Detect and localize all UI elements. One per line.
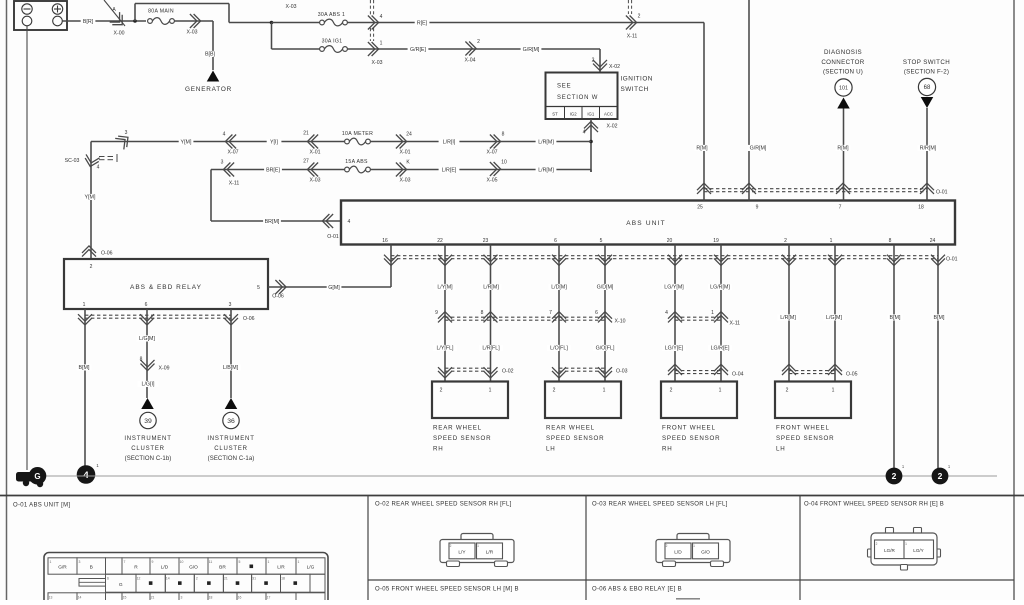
svg-text:R[M]: R[M] xyxy=(696,146,708,152)
svg-text:O-01: O-01 xyxy=(936,190,948,196)
svg-text:11: 11 xyxy=(209,560,213,564)
svg-text:FRONT WHEEL: FRONT WHEEL xyxy=(662,425,716,432)
svg-text:10A METER: 10A METER xyxy=(342,131,373,137)
svg-text:L/R[M]: L/R[M] xyxy=(483,285,499,291)
svg-text:ABS & EBD RELAY: ABS & EBD RELAY xyxy=(130,284,202,291)
svg-text:G/R: G/R xyxy=(58,565,67,571)
svg-text:Y[M]: Y[M] xyxy=(85,195,96,201)
svg-text:ACC: ACC xyxy=(604,112,613,117)
svg-text:DIAGNOSIS: DIAGNOSIS xyxy=(824,49,862,56)
svg-text:68: 68 xyxy=(924,85,931,91)
svg-text:2: 2 xyxy=(450,544,452,548)
svg-text:15A ABS: 15A ABS xyxy=(345,159,368,165)
svg-text:3: 3 xyxy=(221,160,224,166)
svg-text:X-04: X-04 xyxy=(465,58,476,64)
svg-text:2: 2 xyxy=(638,14,641,20)
svg-text:G/R[M]: G/R[M] xyxy=(523,47,540,53)
svg-text:39: 39 xyxy=(144,418,152,425)
svg-text:L/G[I]: L/G[I] xyxy=(142,382,155,388)
svg-text:X-01: X-01 xyxy=(400,150,411,156)
svg-text:2: 2 xyxy=(477,39,480,45)
svg-text:1: 1 xyxy=(477,544,479,548)
svg-text:B[B]: B[B] xyxy=(205,52,216,58)
svg-text:(SECTION U): (SECTION U) xyxy=(823,69,863,76)
svg-text:1: 1 xyxy=(711,310,714,316)
svg-text:L/B[M]: L/B[M] xyxy=(223,365,239,371)
svg-text:2: 2 xyxy=(592,58,595,64)
svg-text:10: 10 xyxy=(180,560,184,564)
svg-text:36: 36 xyxy=(227,418,235,425)
svg-text:14: 14 xyxy=(78,595,82,599)
svg-text:2: 2 xyxy=(938,471,943,481)
svg-text:31: 31 xyxy=(252,577,256,581)
svg-text:B: B xyxy=(90,565,93,571)
svg-text:B[M]: B[M] xyxy=(934,315,945,321)
svg-text:16: 16 xyxy=(238,595,242,599)
svg-text:101: 101 xyxy=(839,85,848,91)
svg-text:B[M]: B[M] xyxy=(890,315,901,321)
svg-text:(SECTION C-1a): (SECTION C-1a) xyxy=(208,456,255,462)
svg-text:6: 6 xyxy=(554,238,557,244)
svg-text:8: 8 xyxy=(481,310,484,316)
svg-text:L/Y[M]: L/Y[M] xyxy=(437,285,453,291)
svg-text:R[M]: R[M] xyxy=(837,146,849,152)
svg-text:20: 20 xyxy=(667,238,673,244)
svg-text:(SECTION F-2): (SECTION F-2) xyxy=(904,69,949,76)
svg-text:O-06: O-06 xyxy=(272,294,284,300)
svg-text:G/O: G/O xyxy=(701,550,710,556)
svg-text:3: 3 xyxy=(79,560,81,564)
svg-text:30A IG1: 30A IG1 xyxy=(322,39,343,45)
svg-text:SPEED SENSOR: SPEED SENSOR xyxy=(546,435,604,442)
svg-text:IGNITION: IGNITION xyxy=(621,76,653,83)
svg-text:6: 6 xyxy=(595,310,598,316)
svg-text:L/R[FL]: L/R[FL] xyxy=(482,346,500,352)
svg-text:3: 3 xyxy=(181,595,183,599)
svg-text:3: 3 xyxy=(125,130,128,136)
svg-text:O-04 FRONT WHEEL SPEED SENSOR: O-04 FRONT WHEEL SPEED SENSOR RH [E] B xyxy=(804,502,944,508)
svg-text:L/G[M]: L/G[M] xyxy=(139,336,155,342)
svg-text:1: 1 xyxy=(905,542,907,546)
svg-text:24: 24 xyxy=(406,132,412,138)
svg-text:LG/R[E]: LG/R[E] xyxy=(711,346,730,352)
svg-text:G/O: G/O xyxy=(189,565,198,571)
svg-text:17: 17 xyxy=(267,595,271,599)
svg-text:10: 10 xyxy=(501,160,507,166)
svg-text:8: 8 xyxy=(889,238,892,244)
svg-text:5: 5 xyxy=(257,285,260,291)
svg-text:21: 21 xyxy=(224,577,228,581)
svg-text:ST: ST xyxy=(552,112,558,117)
svg-text:1: 1 xyxy=(268,560,270,564)
svg-text:SPEED SENSOR: SPEED SENSOR xyxy=(662,435,720,442)
svg-text:L/R: L/R xyxy=(277,565,285,571)
svg-text:SECTION W: SECTION W xyxy=(557,95,598,101)
svg-text:2: 2 xyxy=(666,544,668,548)
svg-text:1: 1 xyxy=(719,388,722,394)
svg-text:2: 2 xyxy=(670,388,673,394)
svg-text:1: 1 xyxy=(50,560,52,564)
svg-text:9: 9 xyxy=(435,310,438,316)
svg-text:X-02: X-02 xyxy=(607,124,618,130)
svg-text:R: R xyxy=(134,565,138,571)
svg-text:X-10: X-10 xyxy=(615,319,626,325)
svg-text:18: 18 xyxy=(281,577,285,581)
svg-text:6: 6 xyxy=(145,302,148,308)
svg-text:L/D: L/D xyxy=(161,565,169,571)
svg-text:B[M]: B[M] xyxy=(79,365,90,371)
svg-text:X-02: X-02 xyxy=(609,64,620,70)
svg-text:O-05: O-05 xyxy=(846,372,858,378)
svg-text:9: 9 xyxy=(152,560,154,564)
svg-text:L/Y[FL]: L/Y[FL] xyxy=(436,346,454,352)
svg-text:16: 16 xyxy=(382,238,388,244)
svg-text:1: 1 xyxy=(380,41,383,47)
svg-text:X-09: X-09 xyxy=(159,366,170,372)
svg-text:2: 2 xyxy=(784,238,787,244)
svg-text:O-02: O-02 xyxy=(502,369,514,375)
svg-text:L/R: L/R xyxy=(486,550,494,556)
svg-text:4: 4 xyxy=(348,219,351,225)
svg-text:L/G: L/G xyxy=(307,565,315,571)
svg-text:LG/R[M]: LG/R[M] xyxy=(710,285,730,291)
svg-text:G: G xyxy=(119,582,123,588)
svg-text:X-03: X-03 xyxy=(187,30,198,36)
svg-text:SC-03: SC-03 xyxy=(65,158,80,164)
svg-text:CONNECTOR: CONNECTOR xyxy=(821,59,864,66)
svg-text:REAR WHEEL: REAR WHEEL xyxy=(546,425,595,432)
svg-text:4: 4 xyxy=(380,14,383,20)
svg-text:X-03: X-03 xyxy=(372,60,383,66)
svg-text:G/R[E]: G/R[E] xyxy=(410,47,426,53)
svg-text:1: 1 xyxy=(693,544,695,548)
svg-text:L/O[FL]: L/O[FL] xyxy=(550,346,568,352)
svg-text:LH: LH xyxy=(546,446,556,453)
svg-text:80A MAIN: 80A MAIN xyxy=(148,9,174,15)
svg-text:X-07: X-07 xyxy=(487,150,498,156)
svg-text:L/R[M]: L/R[M] xyxy=(780,315,796,321)
svg-text:7: 7 xyxy=(839,205,842,211)
svg-text:X-03: X-03 xyxy=(310,178,321,184)
svg-text:BR[E]: BR[E] xyxy=(266,168,280,174)
svg-text:ABS UNIT: ABS UNIT xyxy=(626,220,666,227)
svg-text:4: 4 xyxy=(583,130,586,136)
svg-text:L/G[M]: L/G[M] xyxy=(826,315,842,321)
svg-text:4: 4 xyxy=(97,165,100,171)
svg-text:G[M]: G[M] xyxy=(328,285,340,291)
svg-text:L/D: L/D xyxy=(674,550,682,556)
svg-text:SPEED SENSOR: SPEED SENSOR xyxy=(433,435,491,442)
svg-text:STOP SWITCH: STOP SWITCH xyxy=(903,59,950,66)
svg-text:12: 12 xyxy=(137,577,141,581)
svg-text:4: 4 xyxy=(665,310,668,316)
svg-text:X-00: X-00 xyxy=(114,31,125,37)
svg-text:X-11: X-11 xyxy=(627,34,638,40)
svg-text:O-06: O-06 xyxy=(101,251,113,257)
svg-text:Y[M]: Y[M] xyxy=(181,140,192,146)
svg-text:IG2: IG2 xyxy=(570,112,578,117)
svg-text:CLUSTER: CLUSTER xyxy=(131,446,165,452)
svg-text:2: 2 xyxy=(440,388,443,394)
svg-text:LG/Y: LG/Y xyxy=(913,548,923,553)
svg-text:G: G xyxy=(34,472,40,481)
svg-text:X-03: X-03 xyxy=(286,4,297,10)
svg-text:L/Y: L/Y xyxy=(458,550,466,556)
svg-text:1: 1 xyxy=(83,302,86,308)
svg-text:6: 6 xyxy=(107,577,109,581)
svg-text:22: 22 xyxy=(437,238,443,244)
svg-text:19: 19 xyxy=(713,238,719,244)
svg-text:15: 15 xyxy=(123,595,127,599)
svg-text:BR[M]: BR[M] xyxy=(265,219,280,225)
svg-text:5: 5 xyxy=(239,560,241,564)
svg-text:INSTRUMENT: INSTRUMENT xyxy=(207,436,254,442)
svg-text:LG/R: LG/R xyxy=(884,548,895,553)
svg-text:(SECTION C-1b): (SECTION C-1b) xyxy=(125,456,172,462)
svg-text:LG/Y[M]: LG/Y[M] xyxy=(664,285,684,291)
svg-text:O-06: O-06 xyxy=(243,316,255,322)
svg-text:G/D[M]: G/D[M] xyxy=(597,285,614,291)
svg-text:13: 13 xyxy=(49,595,53,599)
svg-text:18: 18 xyxy=(918,205,924,211)
svg-text:X-11: X-11 xyxy=(229,181,240,187)
svg-text:CLUSTER: CLUSTER xyxy=(214,446,248,452)
svg-text:L/R[E]: L/R[E] xyxy=(442,168,457,174)
svg-text:23: 23 xyxy=(483,238,489,244)
svg-text:21: 21 xyxy=(303,131,309,137)
svg-text:Y[I]: Y[I] xyxy=(270,140,278,146)
svg-text:1: 1 xyxy=(830,238,833,244)
svg-text:24: 24 xyxy=(930,238,936,244)
svg-text:L/R[I]: L/R[I] xyxy=(443,140,456,146)
svg-text:BR: BR xyxy=(219,565,226,571)
svg-text:X-01: X-01 xyxy=(310,150,321,156)
svg-text:O-03: O-03 xyxy=(616,369,628,375)
svg-text:1: 1 xyxy=(489,388,492,394)
svg-text:9: 9 xyxy=(756,205,759,211)
svg-text:27: 27 xyxy=(303,159,309,165)
svg-text:L/R[M]: L/R[M] xyxy=(538,140,554,146)
svg-text:14: 14 xyxy=(166,577,170,581)
svg-text:O-04: O-04 xyxy=(732,372,744,378)
svg-text:3: 3 xyxy=(229,302,232,308)
svg-text:O-01: O-01 xyxy=(946,257,958,263)
svg-text:SPEED SENSOR: SPEED SENSOR xyxy=(776,435,834,442)
svg-text:4: 4 xyxy=(83,470,89,481)
svg-text:1: 1 xyxy=(298,560,300,564)
svg-text:B[R]: B[R] xyxy=(83,19,94,25)
svg-text:R[E]: R[E] xyxy=(417,21,428,27)
svg-text:X-11: X-11 xyxy=(730,321,741,327)
svg-text:SEE: SEE xyxy=(557,84,571,90)
svg-text:RH: RH xyxy=(662,446,673,453)
svg-text:O-02 REAR WHEEL SPEED SENSOR R: O-02 REAR WHEEL SPEED SENSOR RH [FL] xyxy=(375,502,512,508)
svg-text:25: 25 xyxy=(697,205,703,211)
svg-text:O-01 ABS UNIT [M]: O-01 ABS UNIT [M] xyxy=(13,503,70,509)
svg-text:O-06 ABS & EBO RELAY [E] B: O-06 ABS & EBO RELAY [E] B xyxy=(592,587,682,593)
svg-text:8: 8 xyxy=(140,357,143,363)
svg-text:R/R[M]: R/R[M] xyxy=(920,146,937,152)
svg-text:7: 7 xyxy=(549,310,552,316)
svg-text:LH: LH xyxy=(776,446,786,453)
svg-text:O-03 REAR WHEEL SPEED SENSOR L: O-03 REAR WHEEL SPEED SENSOR LH [FL] xyxy=(592,502,728,508)
svg-text:X-03: X-03 xyxy=(400,178,411,184)
svg-text:21: 21 xyxy=(151,595,155,599)
svg-text:2: 2 xyxy=(892,471,897,481)
svg-text:G/R[M]: G/R[M] xyxy=(750,146,767,152)
svg-text:O-05 FRONT WHEEL SPEED SENSOR: O-05 FRONT WHEEL SPEED SENSOR LH [M] B xyxy=(375,587,519,593)
svg-text:2: 2 xyxy=(90,264,93,270)
svg-text:30A ABS 1: 30A ABS 1 xyxy=(318,12,346,18)
svg-text:LG/Y[E]: LG/Y[E] xyxy=(665,346,684,352)
svg-text:X-05: X-05 xyxy=(487,178,498,184)
svg-text:1: 1 xyxy=(832,388,835,394)
svg-text:L/R[M]: L/R[M] xyxy=(538,168,554,174)
svg-text:X-07: X-07 xyxy=(228,150,239,156)
svg-text:L/D[M]: L/D[M] xyxy=(551,285,567,291)
svg-text:8: 8 xyxy=(502,132,505,138)
svg-text:2: 2 xyxy=(876,542,878,546)
svg-text:18: 18 xyxy=(209,595,213,599)
svg-text:SWITCH: SWITCH xyxy=(621,86,649,93)
svg-text:RH: RH xyxy=(433,446,444,453)
svg-text:2: 2 xyxy=(196,577,198,581)
svg-text:IG1: IG1 xyxy=(587,112,595,117)
svg-text:GENERATOR: GENERATOR xyxy=(185,86,232,93)
svg-text:1: 1 xyxy=(603,388,606,394)
svg-text:2: 2 xyxy=(553,388,556,394)
svg-text:5: 5 xyxy=(600,238,603,244)
svg-text:2: 2 xyxy=(786,388,789,394)
svg-text:REAR WHEEL: REAR WHEEL xyxy=(433,425,482,432)
svg-text:G/O[FL]: G/O[FL] xyxy=(596,346,615,352)
svg-text:INSTRUMENT: INSTRUMENT xyxy=(124,436,171,442)
svg-text:O-01: O-01 xyxy=(327,234,339,240)
svg-text:4: 4 xyxy=(223,132,226,138)
svg-text:FRONT WHEEL: FRONT WHEEL xyxy=(776,425,830,432)
svg-text:7: 7 xyxy=(124,560,126,564)
